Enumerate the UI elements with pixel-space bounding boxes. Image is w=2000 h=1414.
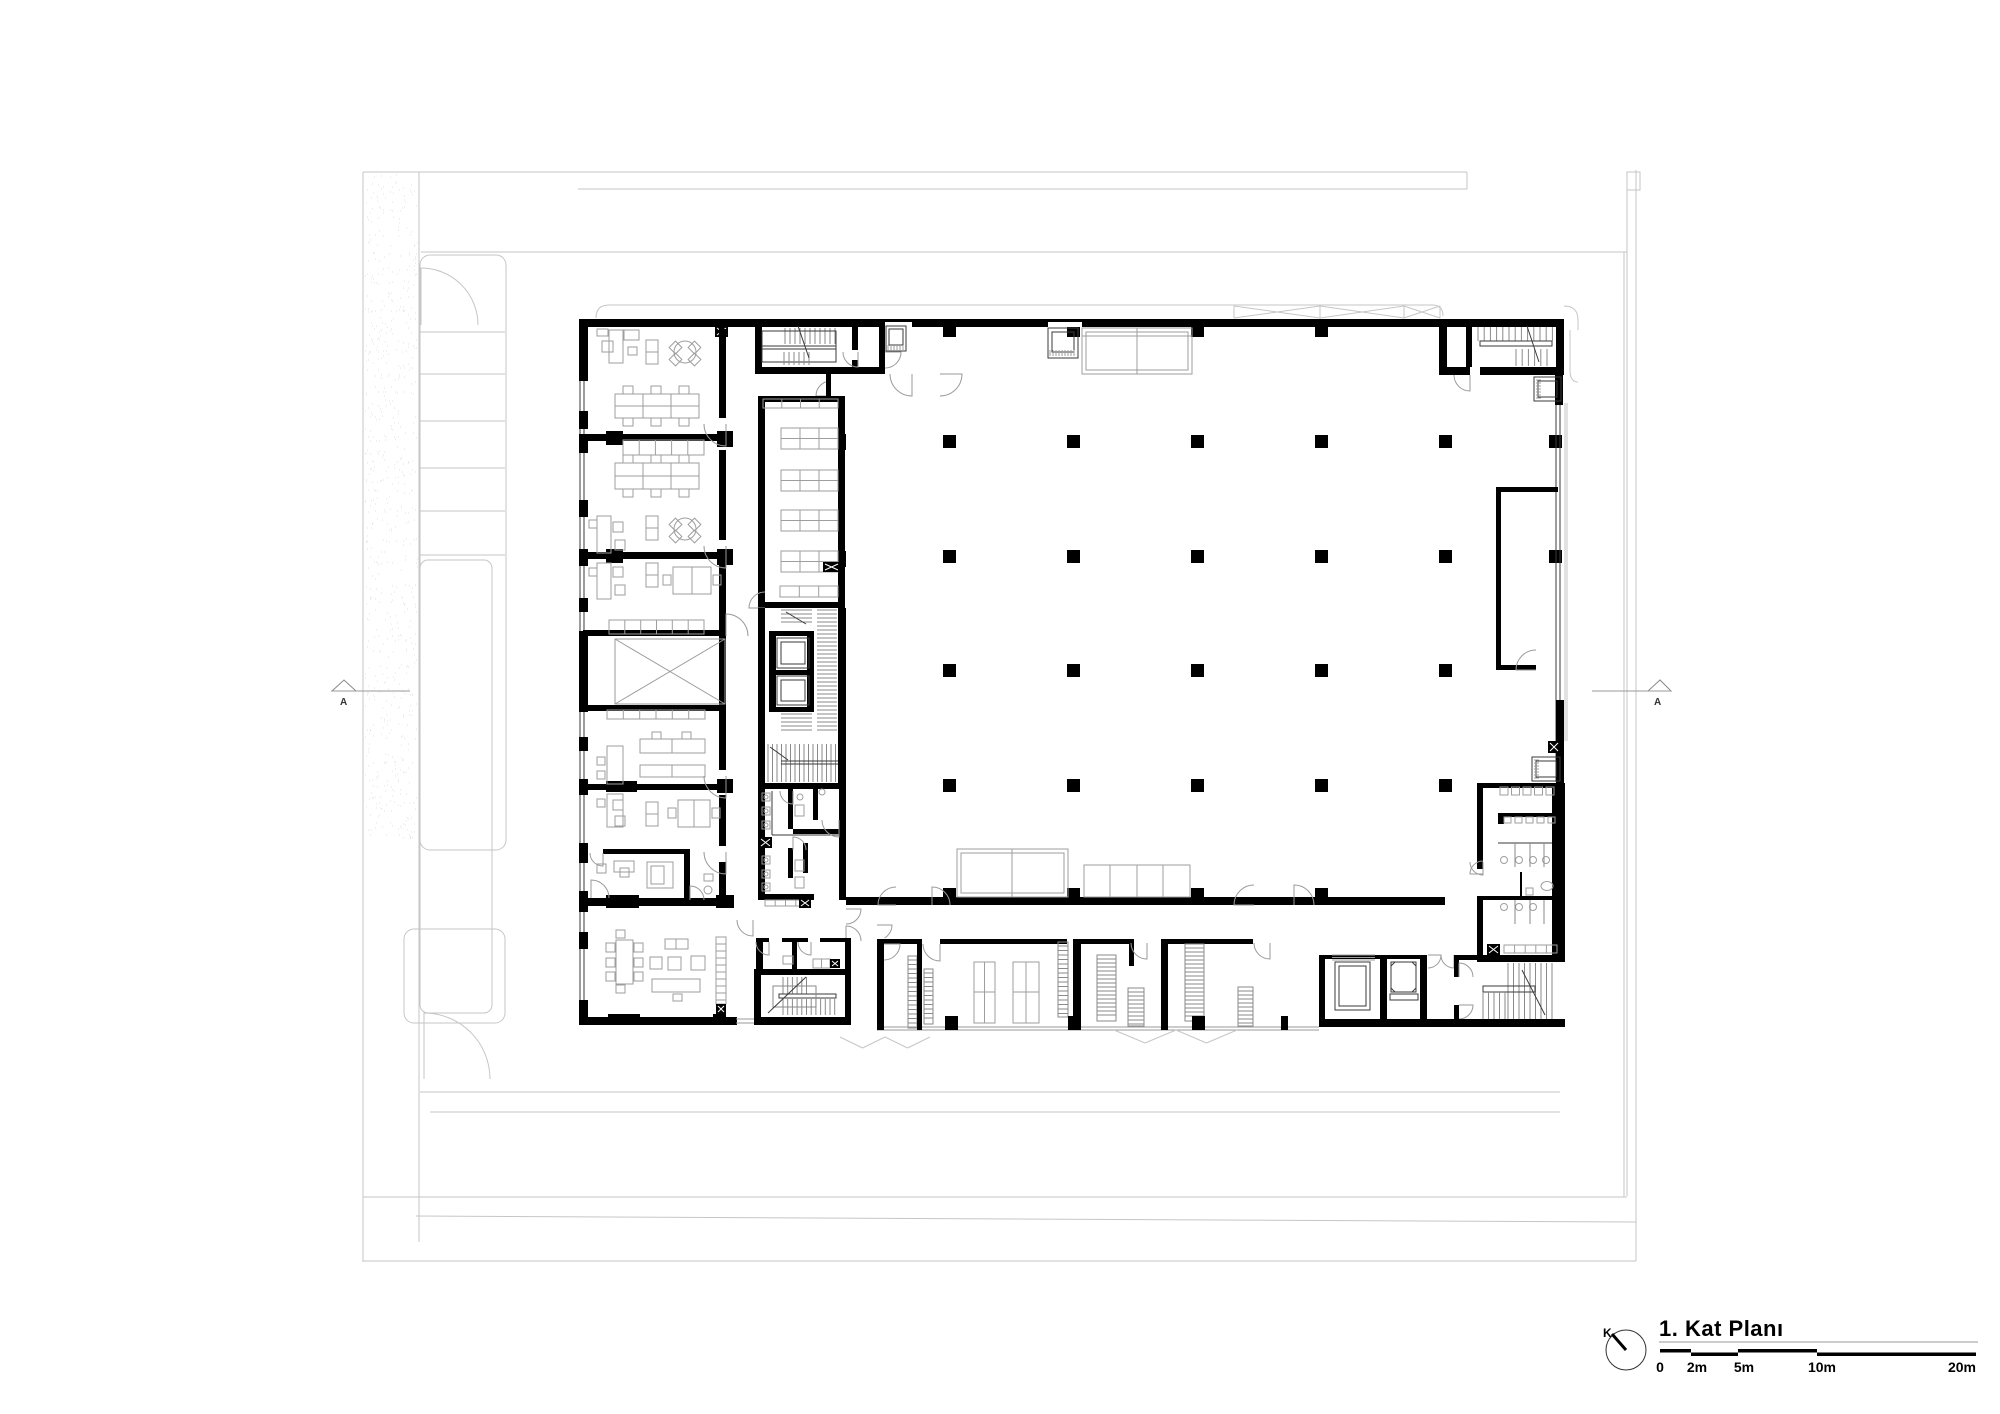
svg-text:0: 0 xyxy=(1656,1359,1664,1375)
svg-text:1. Kat Planı: 1. Kat Planı xyxy=(1659,1316,1784,1341)
svg-text:20m: 20m xyxy=(1948,1359,1976,1375)
svg-text:2m: 2m xyxy=(1687,1359,1707,1375)
svg-text:A: A xyxy=(340,697,347,708)
svg-text:K: K xyxy=(1603,1326,1612,1340)
svg-text:5m: 5m xyxy=(1734,1359,1754,1375)
svg-text:A: A xyxy=(1654,697,1661,708)
svg-text:10m: 10m xyxy=(1808,1359,1836,1375)
